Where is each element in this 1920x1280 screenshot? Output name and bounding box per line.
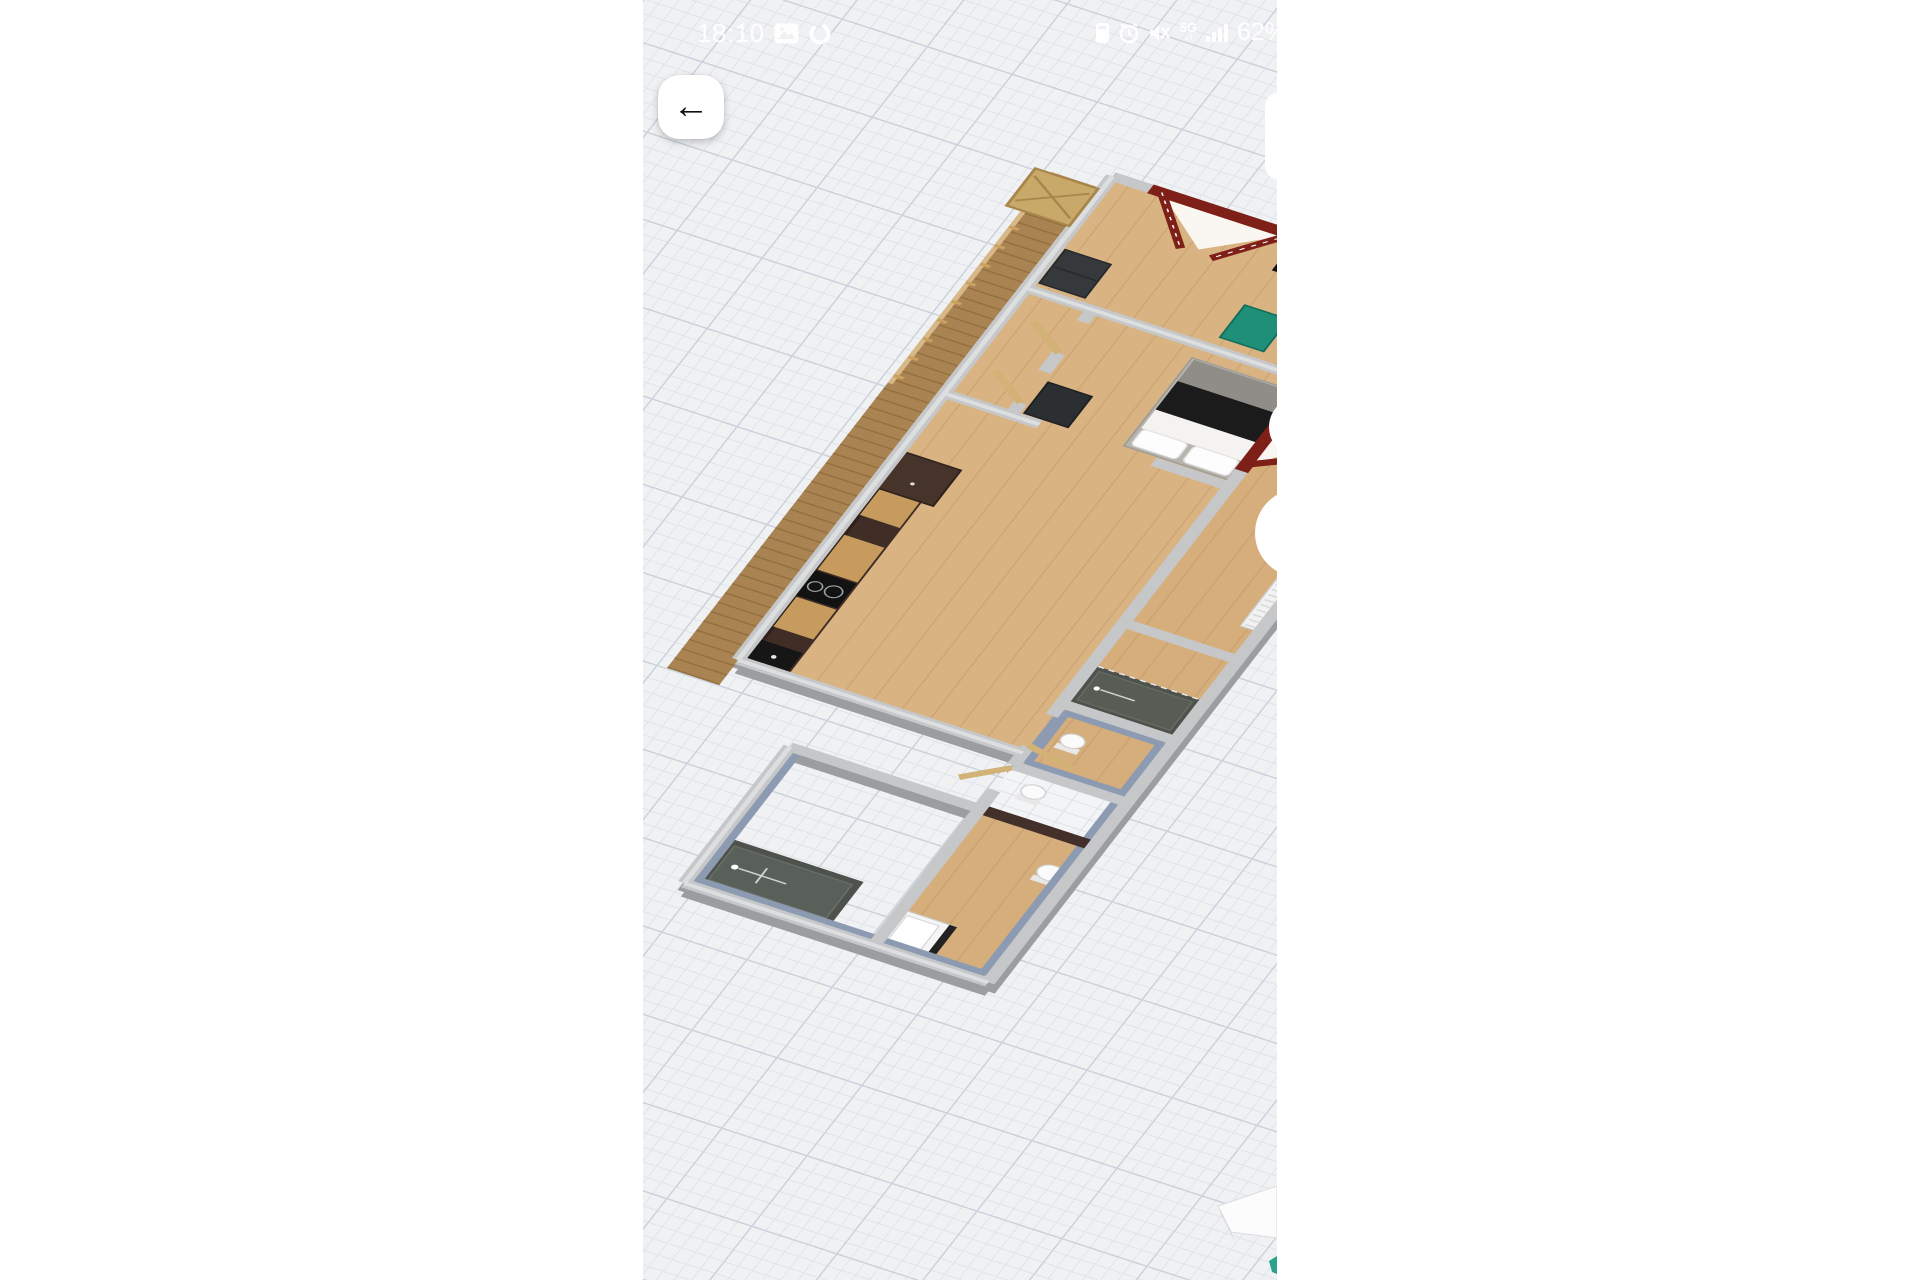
side-panel-partial[interactable] bbox=[1265, 93, 1277, 179]
floorplan-canvas[interactable] bbox=[643, 0, 1277, 1280]
gallery-icon bbox=[774, 23, 799, 44]
screenshot-stage: { "status_bar": { "time": "18:10", "batt… bbox=[0, 0, 1920, 1280]
back-arrow-icon: ← bbox=[673, 87, 710, 124]
floorplan-viewport[interactable]: 18:10 bbox=[643, 0, 1277, 1280]
sync-loop-icon bbox=[808, 22, 832, 46]
battery-percent: 62% bbox=[1237, 18, 1277, 47]
back-button[interactable]: ← bbox=[658, 75, 724, 139]
status-time: 18:10 bbox=[697, 18, 765, 49]
phone-battery-icon bbox=[1095, 22, 1110, 44]
status-bar: 18:10 bbox=[643, 0, 1277, 56]
compass-slab bbox=[1218, 1186, 1277, 1274]
network-5g-indicator: 5G ↓↑ bbox=[1180, 23, 1197, 43]
signal-strength-icon bbox=[1205, 23, 1229, 43]
compass-teal-sliver bbox=[1269, 1256, 1277, 1274]
mute-icon bbox=[1148, 22, 1172, 44]
alarm-icon bbox=[1118, 22, 1140, 44]
